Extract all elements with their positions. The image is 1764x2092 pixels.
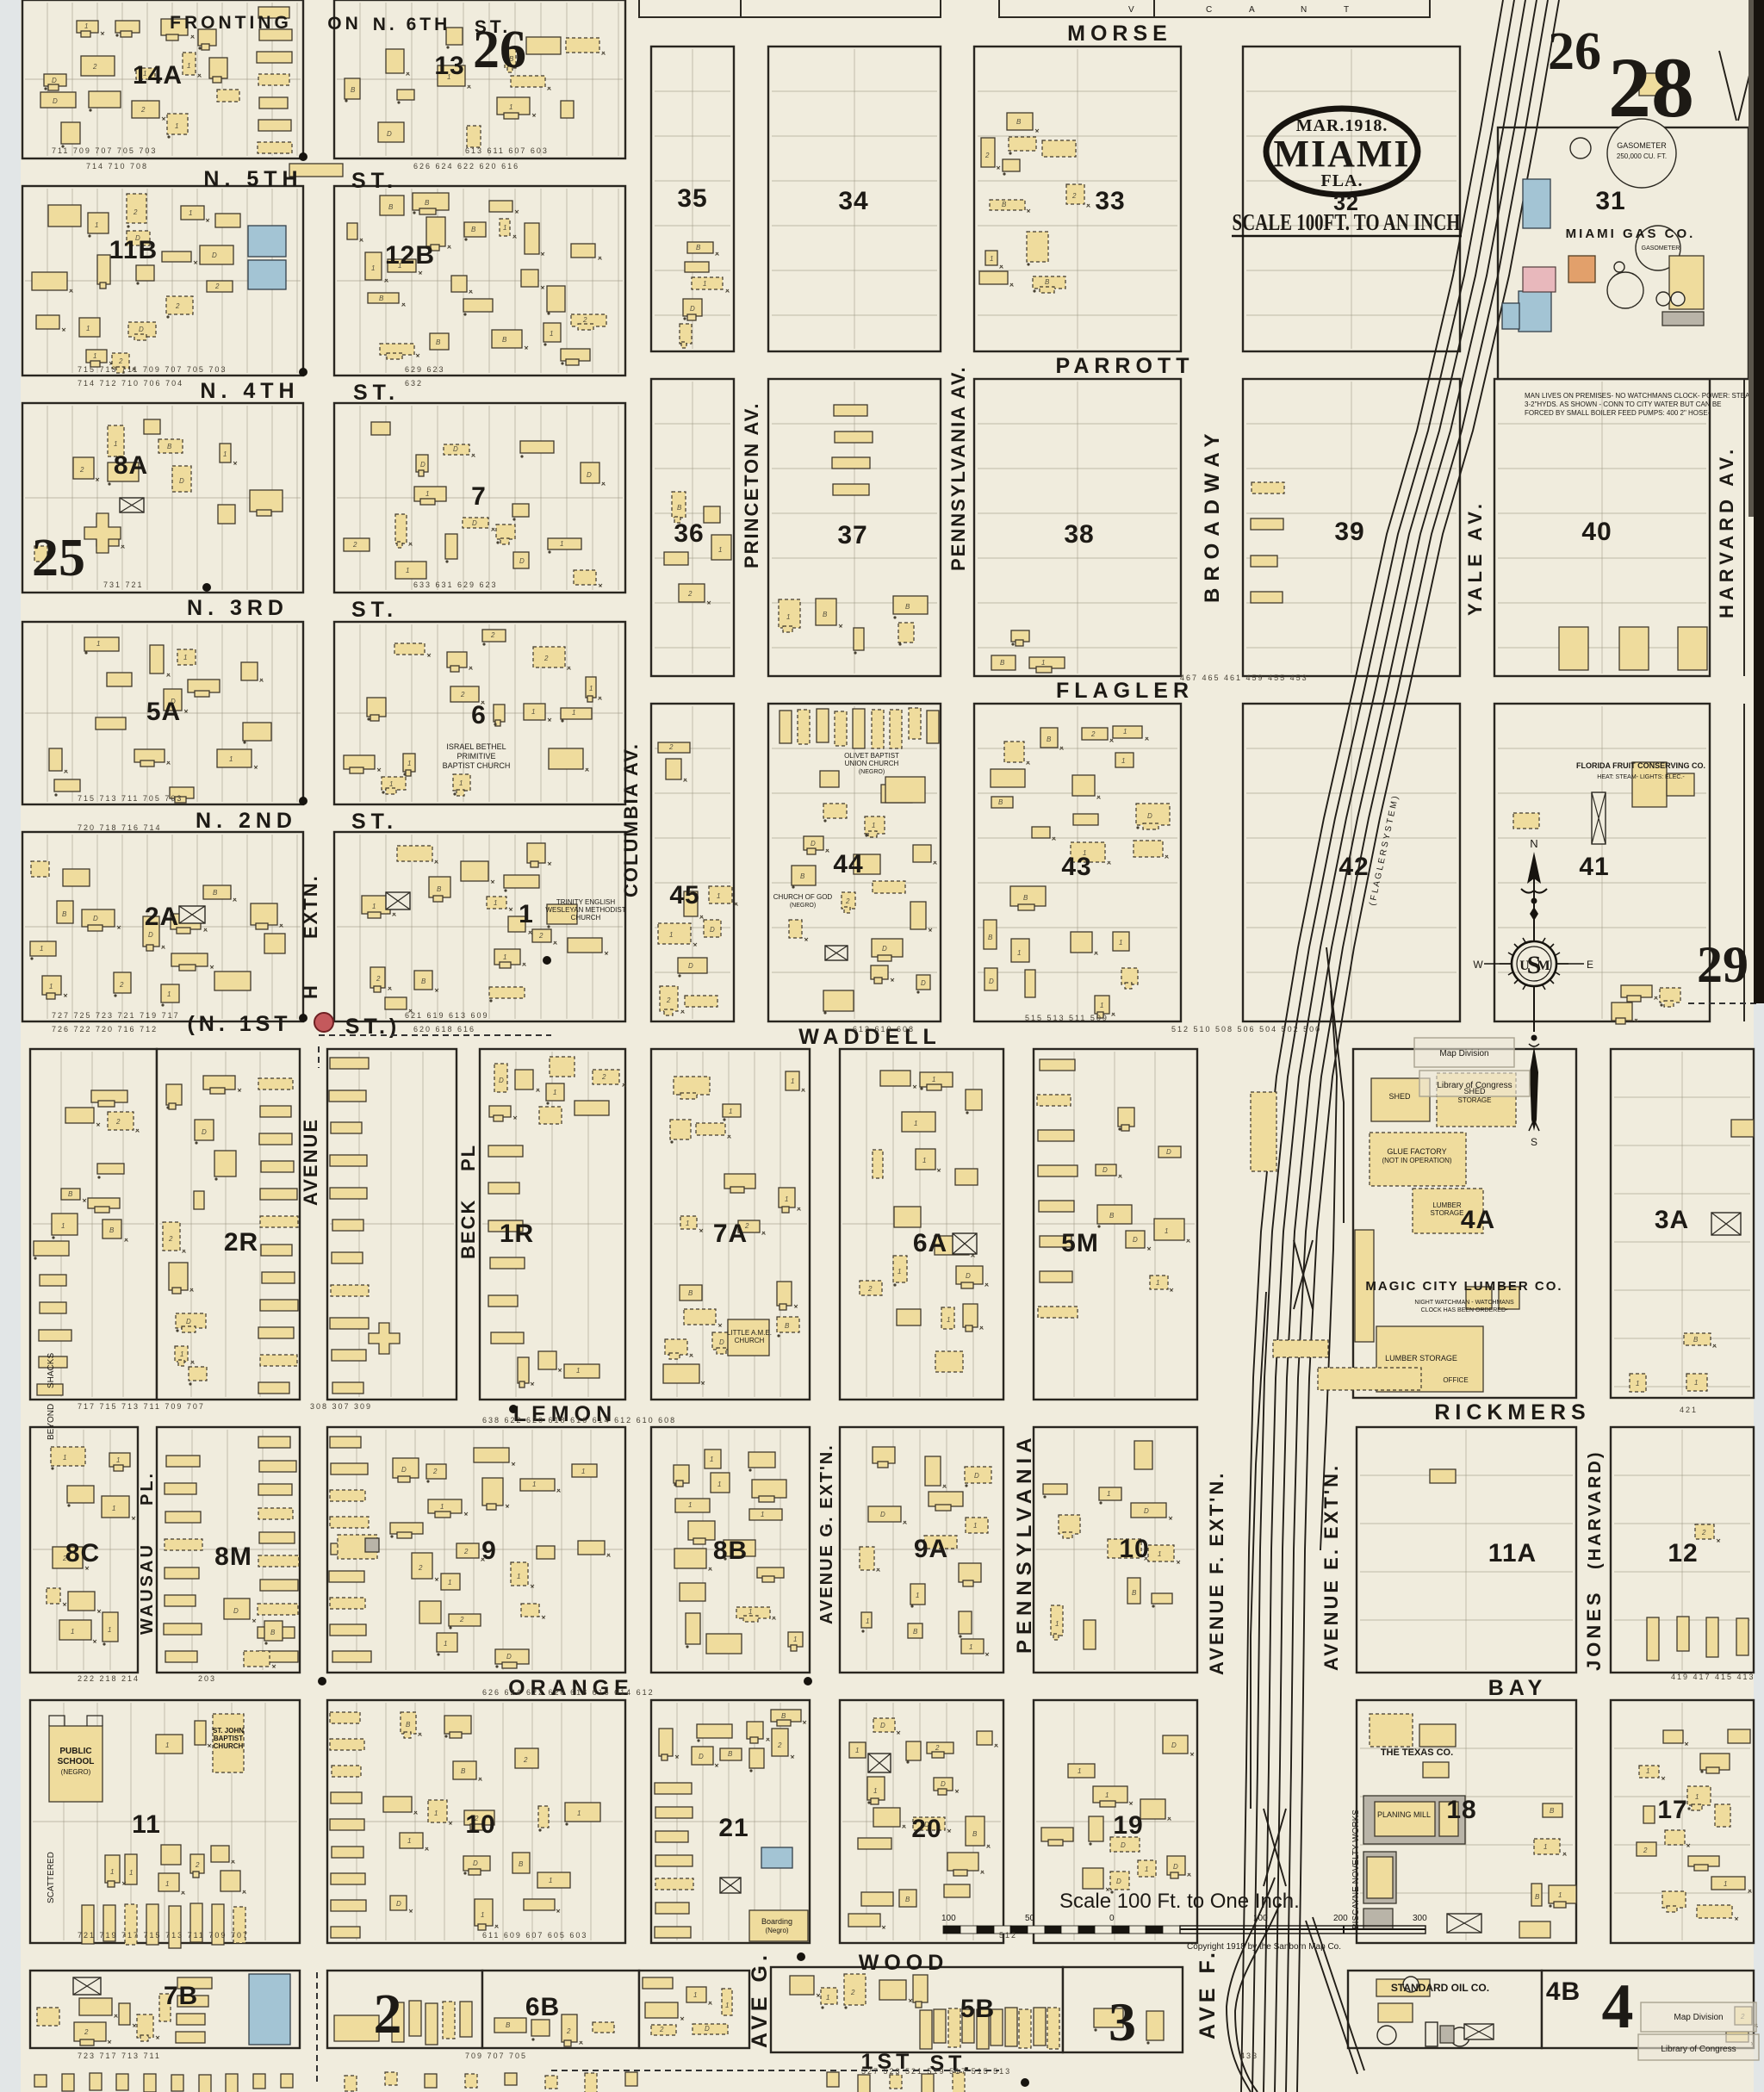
svg-text:1: 1 [688, 1501, 692, 1509]
svg-text:S: S [1531, 1136, 1537, 1148]
svg-text:1: 1 [503, 953, 506, 961]
svg-text:31: 31 [1595, 187, 1625, 215]
svg-text:10: 10 [1119, 1535, 1149, 1563]
svg-text:D: D [941, 1780, 946, 1788]
svg-text:8C: 8C [65, 1539, 100, 1567]
svg-text:PLANING MILL: PLANING MILL [1377, 1810, 1431, 1819]
svg-text:PRINCETON AV.: PRINCETON AV. [741, 402, 762, 568]
svg-text:D: D [688, 962, 693, 970]
svg-text:SHED: SHED [1463, 1087, 1486, 1096]
svg-text:PUBLIC: PUBLIC [59, 1747, 91, 1756]
svg-text:4A: 4A [1461, 1206, 1495, 1234]
svg-text:PL.: PL. [138, 1471, 157, 1505]
svg-text:1: 1 [1558, 1891, 1562, 1899]
svg-text:2: 2 [543, 655, 549, 662]
svg-text:6B: 6B [525, 1993, 560, 2021]
svg-text:1: 1 [1041, 659, 1045, 667]
svg-text:B: B [437, 885, 442, 893]
svg-text:AVE F.: AVE F. [1196, 1948, 1220, 2039]
svg-text:14A: 14A [133, 61, 183, 90]
svg-text:633 631 629 623: 633 631 629 623 [413, 580, 498, 589]
svg-text:B: B [913, 1628, 918, 1636]
svg-text:515 513 511 509: 515 513 511 509 [1025, 1014, 1109, 1022]
svg-text:D: D [966, 1272, 971, 1280]
svg-text:2: 2 [432, 1468, 438, 1475]
svg-text:CHURCH OF GOD: CHURCH OF GOD [773, 893, 833, 901]
svg-text:1: 1 [990, 255, 993, 263]
svg-text:N: N [1301, 5, 1307, 15]
svg-text:1: 1 [49, 983, 53, 990]
svg-text:638 622 620 618 616 614 612 6: 638 622 620 618 616 614 612 610 608 [482, 1416, 676, 1425]
svg-text:1: 1 [717, 1481, 721, 1488]
svg-text:D: D [719, 1338, 724, 1346]
svg-text:5B: 5B [960, 1995, 995, 2023]
svg-text:1: 1 [1724, 1880, 1727, 1888]
svg-text:1: 1 [729, 1108, 732, 1115]
svg-text:1: 1 [703, 280, 706, 288]
svg-text:1: 1 [95, 221, 98, 229]
svg-text:ST.: ST. [351, 810, 398, 834]
svg-text:36: 36 [674, 519, 704, 548]
svg-text:D: D [473, 1859, 478, 1867]
svg-text:50: 50 [1025, 1914, 1035, 1923]
svg-text:B: B [270, 1629, 276, 1636]
svg-text:3A: 3A [1655, 1206, 1689, 1234]
svg-text:B: B [109, 1226, 115, 1234]
svg-text:ISRAEL BETHEL: ISRAEL BETHEL [446, 742, 506, 751]
svg-text:2: 2 [1701, 1529, 1706, 1536]
svg-text:2: 2 [1643, 1847, 1648, 1854]
svg-text:1: 1 [189, 209, 192, 217]
svg-text:B: B [677, 504, 682, 512]
svg-text:467 465 461 459 455 453: 467 465 461 459 455 453 [1180, 674, 1308, 682]
svg-text:1: 1 [1695, 1793, 1699, 1801]
svg-text:1: 1 [114, 440, 117, 448]
svg-text:1: 1 [1119, 939, 1122, 947]
svg-text:2: 2 [935, 1744, 940, 1752]
svg-text:37: 37 [837, 521, 867, 549]
svg-text:B: B [1000, 659, 1005, 667]
svg-text:300: 300 [1413, 1914, 1427, 1923]
svg-text:1: 1 [425, 490, 429, 498]
svg-text:D: D [148, 931, 153, 939]
svg-text:1: 1 [167, 990, 171, 998]
svg-text:D: D [1147, 812, 1152, 820]
svg-text:3-2"HYDS. AS SHOWN - CONN TO C: 3-2"HYDS. AS SHOWN - CONN TO CITY WATER … [1525, 400, 1722, 408]
svg-text:2: 2 [845, 897, 850, 905]
svg-text:1: 1 [165, 1880, 169, 1888]
svg-text:PENNSYLVANIA AV.: PENNSYLVANIA AV. [947, 365, 969, 571]
svg-text:2: 2 [168, 1235, 173, 1243]
svg-text:203: 203 [198, 1674, 216, 1683]
svg-text:1: 1 [922, 1157, 926, 1164]
svg-text:Map Division: Map Division [1674, 2013, 1723, 2022]
svg-text:612 610 608: 612 610 608 [853, 1025, 915, 1034]
svg-text:D: D [690, 305, 695, 313]
svg-text:1: 1 [434, 1810, 438, 1817]
svg-text:AVENUE: AVENUE [300, 1118, 321, 1206]
svg-text:1: 1 [549, 1877, 552, 1884]
svg-text:1: 1 [84, 22, 88, 30]
svg-text:1: 1 [572, 709, 575, 717]
svg-text:2: 2 [214, 282, 220, 290]
svg-text:B: B [905, 1896, 910, 1903]
svg-text:CLOCK HAS BEEN ORDERED-: CLOCK HAS BEEN ORDERED- [1421, 1307, 1508, 1313]
svg-text:1: 1 [1543, 1843, 1547, 1851]
svg-text:2: 2 [84, 2028, 89, 2036]
svg-text:1: 1 [1107, 1490, 1110, 1498]
svg-text:723 717 713 711: 723 717 713 711 [78, 2052, 161, 2060]
svg-text:1: 1 [448, 1579, 451, 1586]
svg-text:45: 45 [669, 881, 699, 909]
svg-text:B: B [1016, 118, 1022, 126]
svg-text:1: 1 [710, 1456, 713, 1463]
svg-text:1: 1 [407, 1837, 411, 1845]
svg-text:ST.: ST. [351, 169, 398, 193]
svg-text:PARROTT: PARROTT [1056, 354, 1195, 378]
svg-text:B: B [425, 199, 430, 207]
svg-text:1: 1 [1055, 1620, 1059, 1628]
svg-text:D: D [420, 461, 425, 469]
svg-text:2: 2 [118, 357, 123, 365]
svg-text:4B: 4B [1546, 1977, 1581, 2006]
svg-text:2: 2 [566, 2027, 571, 2035]
svg-text:0: 0 [1109, 1914, 1115, 1923]
svg-text:2: 2 [777, 1741, 782, 1749]
svg-text:UNION CHURCH: UNION CHURCH [845, 760, 899, 767]
svg-text:D: D [179, 477, 184, 485]
svg-text:1: 1 [372, 903, 376, 910]
svg-text:2A: 2A [145, 903, 179, 931]
svg-text:7A: 7A [713, 1220, 748, 1248]
svg-text:709 707 705: 709 707 705 [465, 2052, 527, 2060]
svg-text:GASOMETER: GASOMETER [1642, 245, 1680, 251]
svg-text:715 713 711 709 707 705: 715 713 711 709 707 705 703 [78, 365, 227, 374]
svg-text:7B: 7B [164, 1982, 198, 2010]
svg-text:35: 35 [677, 184, 707, 213]
svg-text:B: B [1023, 894, 1028, 902]
svg-text:1: 1 [459, 779, 463, 787]
svg-text:1: 1 [866, 1617, 869, 1625]
svg-text:BAPTIST: BAPTIST [214, 1735, 243, 1742]
svg-text:1: 1 [785, 1195, 788, 1203]
svg-text:SCALE 100FT. TO AN INCH: SCALE 100FT. TO AN INCH [1233, 209, 1461, 235]
svg-text:1: 1 [108, 1626, 111, 1634]
svg-text:Map Division: Map Division [1439, 1049, 1488, 1058]
svg-text:2: 2 [523, 1756, 528, 1764]
svg-text:AVENUE E. EXT'N.: AVENUE E. EXT'N. [1320, 1463, 1342, 1671]
svg-text:8M: 8M [214, 1543, 252, 1571]
svg-text:1: 1 [898, 1268, 901, 1276]
svg-text:W: W [1473, 959, 1483, 971]
svg-text:N. 6TH: N. 6TH [373, 15, 451, 34]
svg-text:(NEGRO): (NEGRO) [859, 769, 885, 775]
svg-text:N. 3RD: N. 3RD [187, 596, 289, 620]
svg-text:CHURCH: CHURCH [735, 1337, 765, 1344]
svg-text:ON: ON [327, 14, 362, 34]
svg-text:714 710 708: 714 710 708 [86, 162, 148, 171]
svg-text:BECK: BECK [457, 1199, 479, 1259]
svg-text:1: 1 [389, 780, 393, 788]
svg-text:STORAGE: STORAGE [1431, 1209, 1464, 1217]
svg-text:1: 1 [407, 760, 411, 767]
svg-text:28: 28 [1608, 40, 1694, 135]
svg-text:1: 1 [589, 685, 593, 692]
svg-text:1: 1 [560, 540, 563, 548]
svg-text:D: D [1116, 1878, 1121, 1885]
svg-text:AVENUE F. EXT'N.: AVENUE F. EXT'N. [1206, 1471, 1227, 1675]
svg-text:2: 2 [666, 996, 671, 1004]
svg-text:11A: 11A [1488, 1539, 1537, 1567]
svg-text:HEAT: STEAM- LIGHTS: ELEC.-: HEAT: STEAM- LIGHTS: ELEC.- [1597, 774, 1685, 780]
svg-text:(NOT IN OPERATION): (NOT IN OPERATION) [1382, 1157, 1451, 1164]
svg-text:B: B [519, 1860, 524, 1868]
svg-text:1: 1 [1100, 1002, 1103, 1009]
svg-text:1: 1 [873, 1787, 877, 1795]
svg-text:MAN LIVES ON PREMISES- NO WATC: MAN LIVES ON PREMISES- NO WATCHMANS CLOC… [1525, 392, 1758, 400]
svg-text:MORSE: MORSE [1067, 22, 1172, 46]
svg-text:12: 12 [1668, 1539, 1698, 1567]
svg-text:620 618 616: 620 618 616 [413, 1025, 475, 1034]
svg-text:1: 1 [96, 640, 100, 648]
svg-text:8A: 8A [114, 451, 148, 480]
svg-text:B: B [1132, 1589, 1137, 1597]
svg-text:1: 1 [503, 224, 506, 232]
svg-text:PENNSYLVANIA: PENNSYLVANIA [1013, 1433, 1036, 1654]
svg-text:308 307 309: 308 307 309 [310, 1402, 372, 1411]
svg-text:D: D [387, 130, 392, 138]
svg-text:D: D [53, 97, 58, 105]
svg-text:B: B [506, 2021, 511, 2029]
svg-text:8B: 8B [713, 1536, 748, 1565]
svg-text:1: 1 [786, 613, 790, 621]
svg-text:FLAGLER: FLAGLER [1056, 679, 1194, 703]
svg-text:1: 1 [693, 1991, 697, 1999]
svg-text:SCHOOL: SCHOOL [58, 1757, 95, 1766]
svg-text:1: 1 [973, 1522, 977, 1530]
svg-text:1: 1 [440, 1503, 444, 1511]
svg-text:GLUE FACTORY: GLUE FACTORY [1387, 1147, 1446, 1156]
svg-text:1: 1 [1158, 1550, 1161, 1558]
svg-text:611 609 607 605 603: 611 609 607 605 603 [482, 1931, 587, 1940]
svg-text:715 713 711 705 703: 715 713 711 705 703 [78, 794, 183, 803]
svg-text:2: 2 [463, 1548, 469, 1555]
svg-text:D: D [472, 519, 477, 527]
svg-text:717 715 713 711 709 707: 717 715 713 711 709 707 [78, 1402, 205, 1411]
svg-text:B: B [785, 1322, 790, 1330]
svg-text:1: 1 [509, 103, 512, 111]
svg-text:FRONTING: FRONTING [170, 13, 292, 33]
svg-text:2: 2 [459, 1616, 464, 1623]
svg-text:2: 2 [92, 63, 97, 71]
svg-text:632: 632 [405, 379, 423, 388]
svg-text:1: 1 [1017, 949, 1021, 957]
svg-text:SHED: SHED [1388, 1092, 1411, 1101]
svg-text:2: 2 [582, 316, 587, 324]
svg-text:100: 100 [941, 1914, 956, 1923]
svg-text:2: 2 [460, 691, 465, 698]
svg-text:1: 1 [1636, 1380, 1639, 1387]
svg-text:1: 1 [581, 1468, 585, 1475]
svg-text:26: 26 [473, 21, 526, 79]
svg-text:11: 11 [132, 1810, 161, 1839]
svg-text:B: B [781, 1712, 786, 1720]
svg-text:720 718 716 714: 720 718 716 714 [78, 823, 162, 832]
svg-text:1: 1 [63, 1454, 66, 1462]
svg-text:1: 1 [1145, 1865, 1148, 1873]
svg-text:BAY: BAY [1488, 1676, 1548, 1700]
svg-text:1: 1 [748, 1608, 752, 1616]
svg-text:(HARVARD): (HARVARD) [1586, 1450, 1605, 1569]
svg-text:N. 2ND: N. 2ND [196, 809, 297, 833]
svg-text:1: 1 [1123, 728, 1127, 736]
svg-text:34: 34 [838, 187, 868, 215]
svg-text:2R: 2R [224, 1228, 258, 1257]
svg-text:FLA.: FLA. [1321, 171, 1363, 190]
svg-text:1: 1 [116, 1456, 120, 1464]
svg-text:D: D [519, 557, 525, 565]
svg-text:1: 1 [494, 899, 497, 907]
svg-text:B: B [68, 1190, 73, 1198]
svg-text:E: E [1587, 959, 1593, 971]
svg-text:1: 1 [717, 892, 720, 900]
svg-text:26: 26 [1548, 22, 1601, 81]
svg-text:1: 1 [371, 264, 375, 272]
svg-text:2: 2 [1071, 192, 1077, 200]
svg-text:Boarding: Boarding [761, 1917, 792, 1926]
svg-text:D: D [396, 1900, 401, 1908]
svg-text:D: D [1133, 1236, 1138, 1244]
svg-text:40: 40 [1581, 518, 1612, 546]
svg-text:BISCAYNE NOVELTY WORKS: BISCAYNE NOVELTY WORKS [1351, 1810, 1361, 1929]
svg-text:11B: 11B [109, 236, 158, 264]
svg-text:B: B [1002, 201, 1007, 208]
svg-text:B: B [988, 934, 993, 941]
svg-text:NIGHT WATCHMAN - WATCHMANS: NIGHT WATCHMAN - WATCHMANS [1414, 1300, 1514, 1306]
svg-text:TRINITY ENGLISH: TRINITY ENGLISH [556, 898, 616, 906]
svg-text:B: B [1045, 278, 1050, 286]
svg-text:1: 1 [40, 945, 43, 953]
svg-text:1: 1 [969, 1643, 972, 1651]
svg-text:1: 1 [444, 1640, 447, 1648]
svg-text:MAGIC CITY LUMBER CO.: MAGIC CITY LUMBER CO. [1365, 1279, 1562, 1294]
svg-text:WESLEYAN METHODIST: WESLEYAN METHODIST [545, 906, 625, 914]
svg-text:726 722 720 716 712: 726 722 720 716 712 [52, 1025, 158, 1034]
svg-text:FLORIDA FRUIT CONSERVING CO.: FLORIDA FRUIT CONSERVING CO. [1576, 761, 1705, 770]
svg-text:419 417 415 413: 419 417 415 413 [1671, 1673, 1755, 1681]
svg-text:GASOMETER: GASOMETER [1617, 141, 1667, 150]
svg-text:LUMBER STORAGE: LUMBER STORAGE [1385, 1354, 1457, 1363]
svg-text:39: 39 [1334, 518, 1364, 546]
svg-text:6A: 6A [913, 1229, 947, 1257]
svg-text:B: B [471, 226, 476, 233]
svg-text:T: T [1344, 5, 1349, 15]
svg-text:711 709 707 705 70: 711 709 707 705 703 [52, 146, 157, 155]
svg-text:BEYOND: BEYOND [47, 1404, 56, 1440]
svg-text:B: B [213, 889, 218, 897]
svg-text:B: B [62, 910, 67, 918]
svg-text:20: 20 [911, 1815, 941, 1843]
svg-text:1: 1 [916, 1592, 919, 1599]
svg-text:38: 38 [1064, 520, 1094, 549]
svg-text:1: 1 [914, 1120, 917, 1127]
svg-text:1: 1 [1156, 1279, 1159, 1287]
svg-text:2: 2 [850, 1989, 855, 1996]
svg-text:727 725 723 721 719 717: 727 725 723 721 719 717 [52, 1011, 180, 1020]
svg-text:B: B [406, 1721, 411, 1729]
svg-text:1: 1 [112, 1505, 115, 1512]
svg-text:ST.: ST. [353, 381, 400, 405]
svg-text:SHACKS: SHACKS [47, 1353, 56, 1388]
svg-text:D: D [506, 1653, 512, 1661]
svg-text:B: B [1109, 1212, 1115, 1220]
svg-text:731 721: 731 721 [103, 580, 144, 589]
svg-text:1: 1 [872, 822, 875, 829]
svg-text:D: D [710, 926, 715, 934]
svg-text:2: 2 [418, 1564, 423, 1572]
svg-text:N. 5TH: N. 5TH [203, 167, 302, 191]
svg-text:CHURCH: CHURCH [214, 1742, 244, 1750]
svg-text:B: B [1535, 1893, 1540, 1901]
svg-text:29: 29 [1697, 936, 1748, 993]
svg-text:1R: 1R [500, 1220, 534, 1248]
svg-text:2: 2 [79, 466, 84, 474]
svg-text:D: D [52, 77, 57, 84]
svg-text:2: 2 [538, 932, 543, 940]
svg-text:D: D [699, 1753, 704, 1760]
svg-text:2: 2 [668, 743, 674, 751]
svg-text:9A: 9A [914, 1535, 948, 1563]
svg-text:2: 2 [140, 106, 146, 114]
svg-text:5A: 5A [146, 698, 181, 726]
svg-text:1: 1 [180, 1350, 183, 1358]
svg-text:21: 21 [718, 1814, 748, 1842]
svg-text:D: D [93, 915, 98, 922]
svg-text:SCATTERED: SCATTERED [47, 1852, 56, 1903]
svg-text:STANDARD OIL CO.: STANDARD OIL CO. [1391, 1982, 1489, 1994]
svg-text:1: 1 [187, 62, 190, 70]
svg-text:JONES: JONES [1583, 1589, 1605, 1671]
svg-text:V: V [1128, 5, 1134, 15]
svg-text:512: 512 [999, 1931, 1017, 1940]
svg-text:(NEGRO): (NEGRO) [790, 903, 816, 909]
svg-text:17: 17 [1657, 1796, 1687, 1824]
svg-text:D: D [989, 978, 994, 985]
svg-text:U: U [1519, 959, 1530, 973]
svg-text:B: B [972, 1830, 978, 1838]
svg-text:B: B [461, 1767, 466, 1775]
svg-text:CHURCH: CHURCH [571, 914, 601, 922]
svg-text:D: D [212, 251, 217, 259]
svg-text:AVENUE G. EXT'N.: AVENUE G. EXT'N. [817, 1443, 836, 1624]
svg-text:1: 1 [86, 325, 90, 332]
svg-text:1: 1 [669, 931, 673, 939]
svg-text:2: 2 [984, 152, 990, 159]
svg-text:D: D [974, 1472, 979, 1480]
svg-text:B: B [1550, 1807, 1555, 1815]
svg-text:1: 1 [1165, 1227, 1168, 1235]
svg-text:6: 6 [471, 701, 487, 729]
svg-text:(NEGRO): (NEGRO) [61, 1768, 91, 1776]
svg-text:626 624 622 620 616: 626 624 622 620 616 [413, 162, 519, 171]
svg-text:D: D [811, 840, 816, 847]
svg-text:D: D [233, 1607, 239, 1615]
svg-text:B: B [436, 338, 441, 346]
svg-text:1: 1 [725, 2002, 729, 2009]
svg-text:D: D [705, 2025, 710, 2033]
svg-text:Scale 100 Ft. to One Inch.: Scale 100 Ft. to One Inch. [1059, 1890, 1300, 1913]
svg-text:2: 2 [376, 975, 381, 983]
